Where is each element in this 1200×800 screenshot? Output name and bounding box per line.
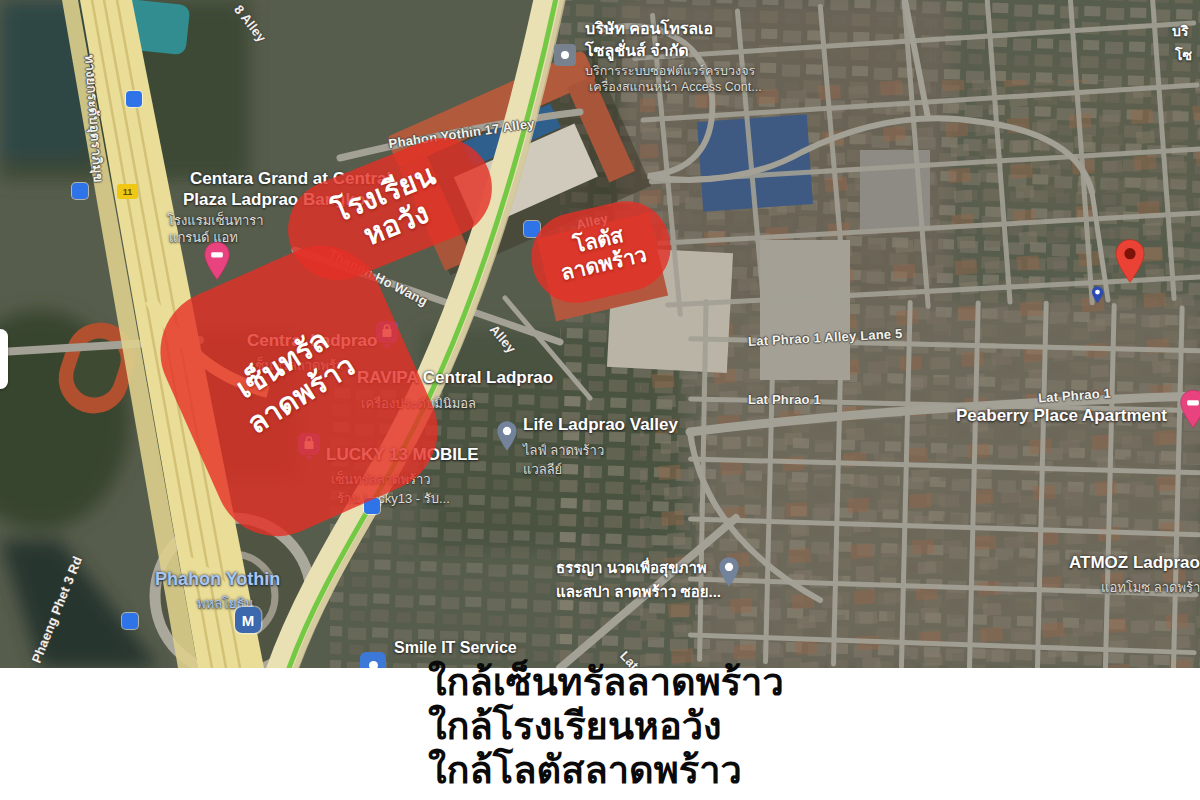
hotel-pin-icon[interactable] <box>1179 389 1200 429</box>
road-label-lat-phrao-1-a: Lat Phrao 1 <box>748 392 821 407</box>
bus-stop-icon[interactable] <box>126 91 142 107</box>
caption-line-2: ใกล้โรงเรียนหอวัง <box>428 706 722 748</box>
poi-smile-it-service[interactable]: Smile IT Service <box>394 639 517 657</box>
poi-edge-fragment-2: โซ <box>1175 44 1192 66</box>
mini-blue-pin-icon[interactable] <box>1091 286 1104 304</box>
destination-pin-icon[interactable] <box>1114 238 1146 284</box>
poi-tanya-spa-line1[interactable]: ธรรญา นวดเพื่อสุขภาพ <box>556 556 707 580</box>
route-shield-11: 11 <box>117 184 138 199</box>
hotel-pin-icon[interactable] <box>203 241 231 281</box>
gray-poi-pin-icon[interactable] <box>718 556 740 588</box>
bus-stop-icon[interactable] <box>72 183 88 199</box>
poi-atmoz[interactable]: ATMOZ Ladprao <box>1069 553 1200 573</box>
poi-life-sub2: แวลลีย์ <box>523 459 562 480</box>
bus-stop-icon[interactable] <box>122 613 138 629</box>
caption-line-3: ใกล้โลตัสลาดพร้าว <box>428 750 742 792</box>
poi-control-a-sub2: เครื่องสแกนหน้า Access Cont... <box>589 77 762 97</box>
gray-poi-pin-icon[interactable] <box>496 420 518 452</box>
poi-life-sub1: ไลฟ์ ลาดพร้าว <box>523 440 604 461</box>
poi-edge-fragment-1: บริ <box>1172 20 1188 42</box>
poi-control-a-line2[interactable]: โซลูชั่นส์ จำกัด <box>585 38 689 63</box>
poi-peaberry[interactable]: Peaberry Place Apartment <box>956 406 1167 426</box>
poi-tanya-spa-line2[interactable]: และสปา ลาดพร้าว ซอย... <box>556 580 721 604</box>
side-panel-edge-tab[interactable] <box>0 329 8 389</box>
blue-square-poi-icon[interactable] <box>360 652 386 668</box>
metro-station-icon[interactable]: M <box>235 607 261 633</box>
caption-line-1: ใกล้เซ็นทรัลลาดพร้าว <box>428 662 784 704</box>
generic-poi-icon[interactable] <box>554 44 576 66</box>
satellite-map[interactable]: 8 Alley Phahon Yothin 17 Alley Thanon Ho… <box>0 0 1200 668</box>
poi-life-ladprao-valley[interactable]: Life Ladprao Valley <box>523 415 678 435</box>
screenshot-root: 8 Alley Phahon Yothin 17 Alley Thanon Ho… <box>0 0 1200 800</box>
poi-atmoz-sub: แอทโมซ ลาดพร้าว <box>1101 577 1200 598</box>
station-label-phahon-yothin[interactable]: Phahon Yothin <box>155 569 280 590</box>
